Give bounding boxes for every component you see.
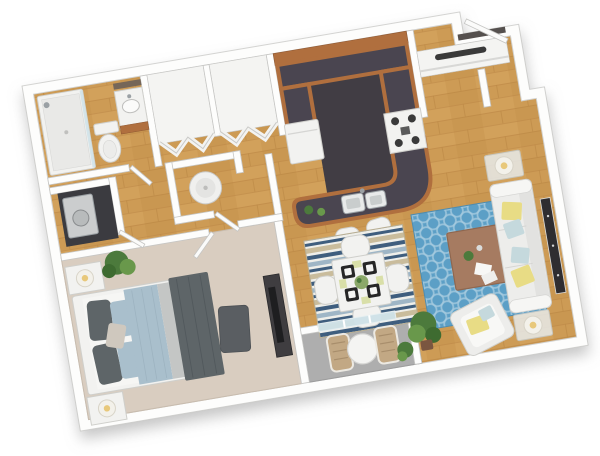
apartment [22, 0, 588, 431]
plate-3 [348, 290, 356, 298]
floorplan-render [0, 0, 600, 456]
plate-1 [344, 268, 352, 276]
plate-2 [366, 264, 374, 272]
sofa-pillow-blue-2 [511, 247, 530, 264]
side-table-north [484, 150, 524, 182]
napkin-3 [339, 279, 347, 289]
pillow-accent [105, 323, 126, 349]
floorplan-svg [0, 0, 600, 456]
living-plant-pot [420, 339, 433, 351]
side-table-south [513, 309, 553, 341]
refrigerator [284, 119, 324, 164]
plate-4 [370, 287, 378, 295]
range-center [400, 126, 410, 135]
hall-closet-b [209, 55, 278, 134]
hall-closet-a [147, 66, 215, 145]
sofa-pillow-yellow-1 [501, 202, 522, 221]
ottoman [218, 305, 251, 353]
patio-chair-east [373, 325, 401, 364]
range [384, 108, 427, 154]
